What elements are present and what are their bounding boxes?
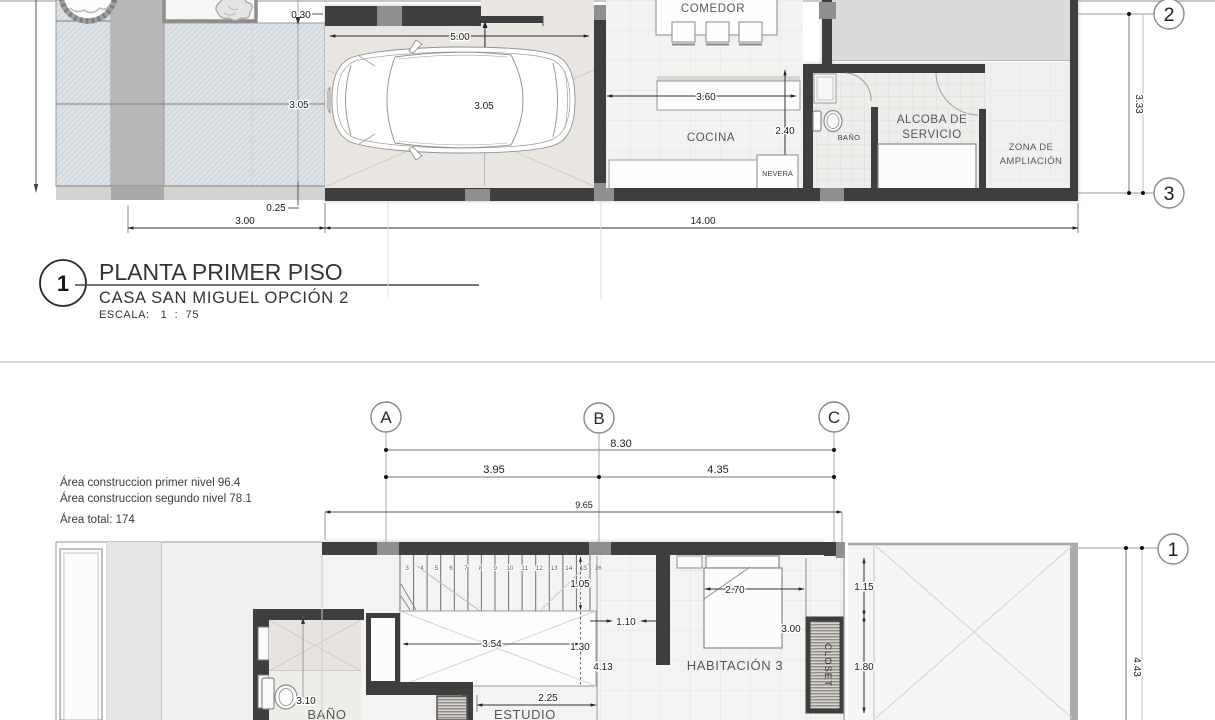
svg-text:8: 8	[479, 565, 483, 572]
svg-text:11: 11	[521, 565, 528, 572]
svg-text:3.95: 3.95	[483, 464, 504, 476]
svg-text:4.35: 4.35	[707, 464, 728, 476]
svg-text:4.13: 4.13	[593, 662, 613, 673]
svg-text:14.00: 14.00	[690, 216, 715, 227]
svg-text:A: A	[380, 408, 392, 427]
svg-text:12: 12	[536, 565, 544, 572]
svg-text:7: 7	[464, 565, 468, 572]
svg-text:ALCOBA DE: ALCOBA DE	[897, 114, 968, 126]
svg-text:3.33: 3.33	[1133, 94, 1144, 114]
svg-text:CLOSET: CLOSET	[822, 643, 833, 687]
svg-text:1: 1	[1168, 539, 1179, 561]
svg-text:8.30: 8.30	[610, 438, 631, 450]
svg-text:HABITACIÓN 3: HABITACIÓN 3	[687, 658, 784, 673]
svg-text:9: 9	[493, 565, 497, 572]
svg-text:CASA SAN MIGUEL OPCIÓN 2: CASA SAN MIGUEL OPCIÓN 2	[99, 288, 349, 307]
svg-text:B: B	[593, 409, 604, 428]
svg-text:1.80: 1.80	[854, 662, 874, 673]
svg-text:1: 1	[57, 271, 69, 296]
svg-text:1.15: 1.15	[854, 582, 874, 593]
svg-text:2.70: 2.70	[725, 585, 745, 596]
svg-text:2: 2	[1164, 4, 1175, 26]
svg-text:ZONA DE: ZONA DE	[1009, 142, 1054, 153]
svg-text:3.00: 3.00	[235, 216, 255, 227]
svg-text:SERVICIO: SERVICIO	[902, 129, 962, 141]
svg-text:C: C	[828, 408, 840, 427]
svg-text:6: 6	[449, 565, 453, 572]
svg-text:3.00: 3.00	[781, 624, 801, 635]
svg-text:Área total: 174: Área total: 174	[60, 513, 135, 526]
svg-text:ESTUDIO: ESTUDIO	[494, 707, 556, 720]
svg-text:3.10: 3.10	[296, 696, 316, 707]
svg-text:AMPLIACIÓN: AMPLIACIÓN	[1000, 156, 1063, 167]
svg-text:Área construccion segundo nive: Área construccion segundo nivel 78.1	[60, 492, 252, 505]
svg-text:2.40: 2.40	[775, 126, 795, 137]
svg-text:3.60: 3.60	[696, 92, 716, 103]
svg-text:10: 10	[506, 565, 514, 572]
svg-text:0.30: 0.30	[291, 10, 311, 21]
svg-text:Área construccion primer nive: Área construccion primer nivel 96.4	[60, 476, 241, 489]
svg-text:0.25: 0.25	[266, 203, 286, 214]
svg-text:NEVERA: NEVERA	[762, 169, 793, 178]
svg-text:9.65: 9.65	[575, 500, 593, 510]
svg-text:PLANTA PRIMER PISO: PLANTA PRIMER PISO	[99, 259, 343, 285]
svg-text:3.54: 3.54	[482, 639, 502, 650]
svg-text:1.10: 1.10	[616, 617, 636, 628]
svg-text:14: 14	[565, 565, 573, 572]
svg-text:3.05: 3.05	[474, 101, 494, 112]
svg-text:COMEDOR: COMEDOR	[681, 3, 745, 15]
svg-text:1.05: 1.05	[570, 579, 590, 590]
svg-text:3.05: 3.05	[289, 100, 309, 111]
svg-text:ESCALA: 1 : 75: ESCALA: 1 : 75	[99, 309, 199, 321]
svg-text:16: 16	[594, 565, 602, 572]
svg-text:4.43: 4.43	[1131, 657, 1142, 677]
svg-text:COCINA: COCINA	[687, 132, 735, 144]
svg-text:3: 3	[1164, 183, 1175, 205]
svg-text:BAÑO: BAÑO	[838, 133, 861, 142]
svg-text:5.00: 5.00	[450, 32, 470, 43]
svg-text:BAÑO: BAÑO	[307, 707, 346, 720]
svg-text:5: 5	[435, 565, 439, 572]
svg-text:1.30: 1.30	[570, 642, 590, 653]
svg-text:3: 3	[405, 565, 409, 572]
svg-text:13: 13	[550, 565, 558, 572]
svg-text:2.25: 2.25	[538, 693, 558, 704]
